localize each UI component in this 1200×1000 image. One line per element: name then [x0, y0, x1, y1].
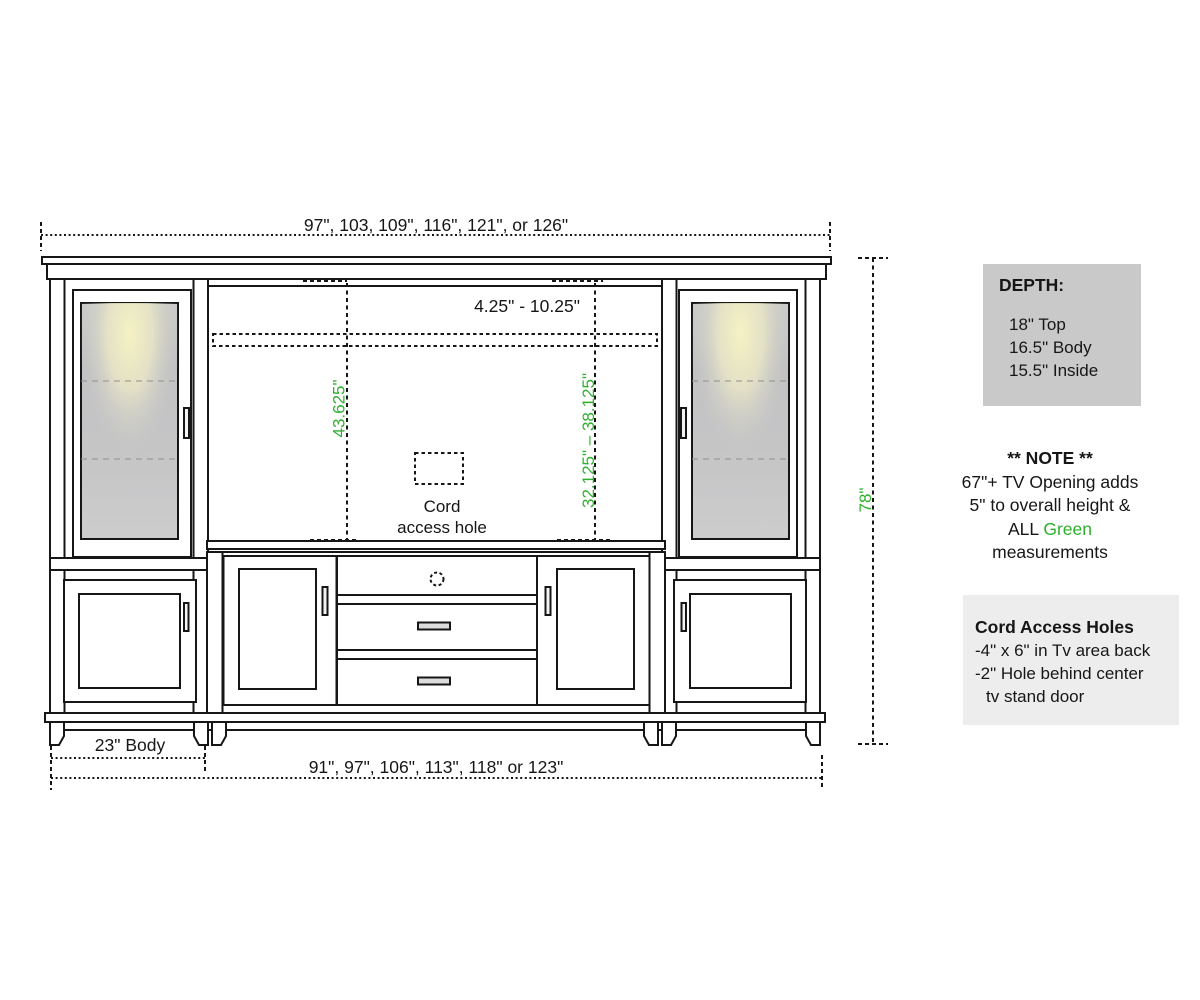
tv-stand-deck — [207, 541, 665, 549]
drawer-handle — [418, 678, 450, 685]
foot — [644, 722, 658, 745]
foot — [662, 722, 676, 745]
cord-access-holes-panel: Cord Access Holes -4" x 6" in Tv area ba… — [963, 595, 1179, 725]
adjustable-shelf-dashed — [213, 334, 657, 346]
depth-panel-title: DEPTH: — [999, 275, 1141, 296]
top-width-dimension-label: 97", 103, 109", 116", 121", or 126" — [136, 215, 736, 235]
right-tower — [662, 279, 820, 715]
cord-label-line1: Cord — [342, 496, 542, 517]
note-panel: ** NOTE ** 67"+ TV Opening adds 5" to ov… — [935, 447, 1165, 565]
left-opening-height-label: 43.625" — [329, 359, 350, 459]
door-handle — [184, 603, 189, 631]
note-line3: ALL Green — [935, 518, 1165, 542]
door-handle — [184, 408, 189, 438]
depth-panel: DEPTH: 18" Top 16.5" Body 15.5" Inside — [983, 264, 1141, 406]
note-line2: 5" to overall height & — [935, 494, 1165, 518]
drawer-handle — [418, 623, 450, 630]
cord-panel-line2: -2" Hole behind center — [975, 662, 1179, 685]
cabinet-light-glow — [81, 303, 178, 539]
cord-access-hole-dashed — [415, 453, 463, 484]
door-handle — [682, 603, 687, 631]
cord-panel-line3: tv stand door — [975, 685, 1179, 708]
note-line4: measurements — [935, 541, 1165, 565]
overall-height-label: 78" — [855, 450, 877, 550]
entertainment-center-dimension-diagram: 97", 103, 109", 116", 121", or 126" 4.25… — [0, 0, 1200, 1000]
cord-panel-line1: -4" x 6" in Tv area back — [975, 639, 1179, 662]
cord-panel-title: Cord Access Holes — [975, 616, 1179, 639]
cord-access-hole-label: Cord access hole — [342, 496, 542, 538]
depth-item-top: 18" Top — [1009, 313, 1141, 336]
depth-item-body: 16.5" Body — [1009, 336, 1141, 359]
right-opening-height-label: 32.125" – 38.125" — [578, 358, 599, 523]
left-tower — [50, 279, 208, 715]
bottom-width-dimension-label: 91", 97", 106", 113", 118" or 123" — [136, 757, 736, 777]
foot — [806, 722, 820, 745]
door-handle — [546, 587, 551, 615]
cord-label-line2: access hole — [342, 517, 542, 538]
note-line3-black: ALL — [1008, 519, 1043, 539]
door-handle — [323, 587, 328, 615]
tv-opening-gap-label: 4.25" - 10.25" — [427, 296, 627, 316]
foot — [212, 722, 226, 745]
door-handle — [681, 408, 686, 438]
note-title: ** NOTE ** — [935, 447, 1165, 471]
depth-list: 18" Top 16.5" Body 15.5" Inside — [999, 313, 1141, 382]
cabinet-light-glow — [692, 303, 789, 539]
tv-stand — [207, 541, 665, 715]
body-width-label: 23" Body — [55, 735, 205, 755]
depth-item-inside: 15.5" Inside — [1009, 359, 1141, 382]
note-line1: 67"+ TV Opening adds — [935, 471, 1165, 495]
note-line3-green: Green — [1043, 519, 1092, 539]
